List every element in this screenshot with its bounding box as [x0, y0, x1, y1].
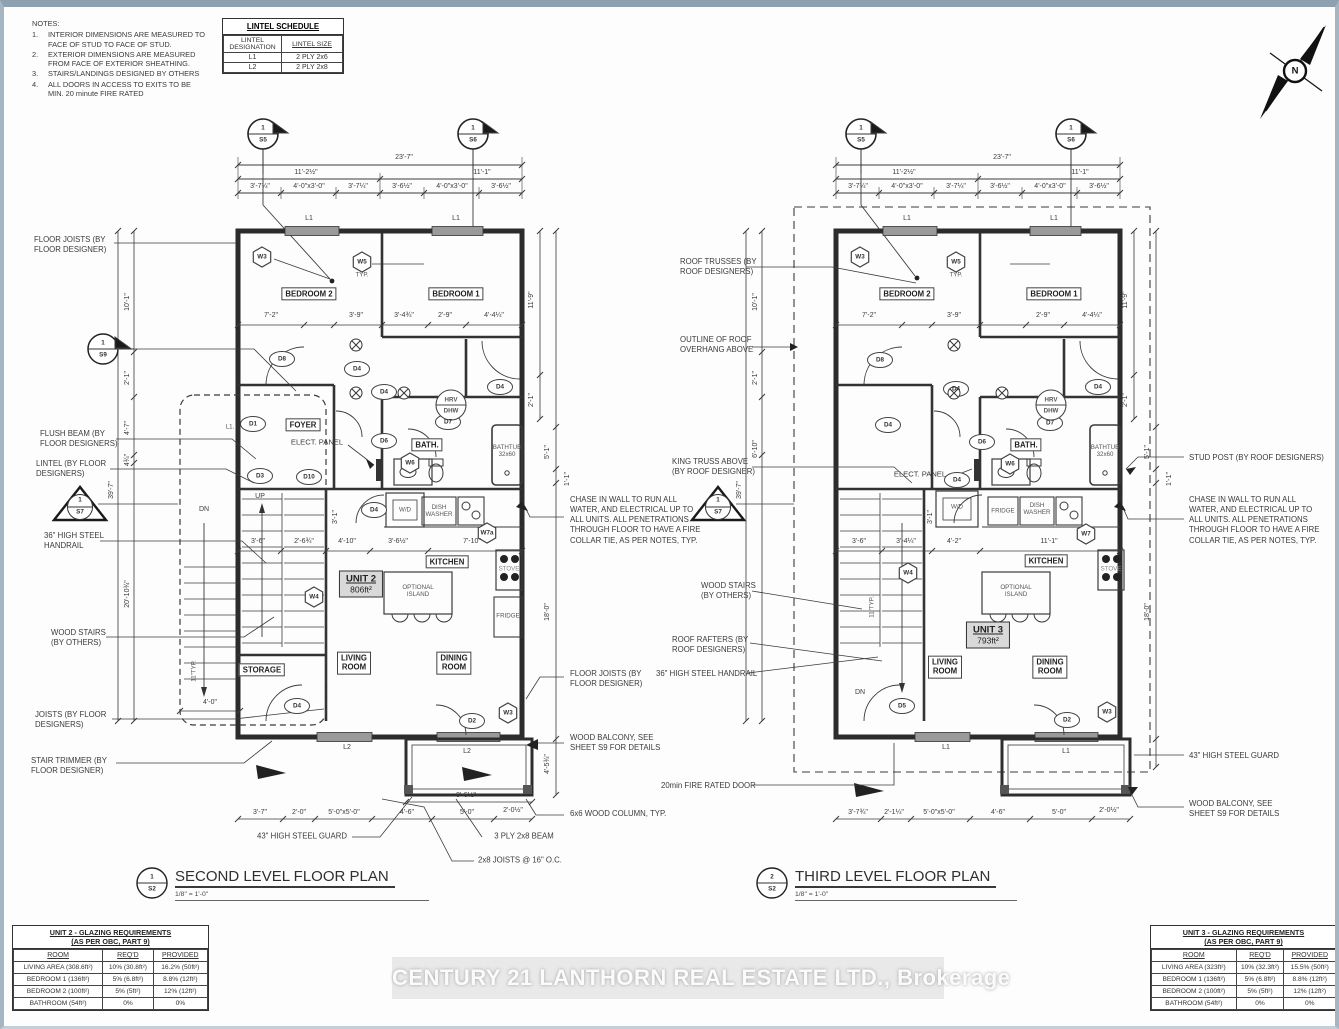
dishwasher-label: DISH WASHER — [426, 504, 453, 518]
washer-dryer-label: W/D — [951, 503, 963, 510]
elect-panel-note: ELECT. PANEL — [894, 471, 946, 480]
dim: 4'-0"x3'-0" — [436, 183, 467, 191]
door-tag: D4 — [952, 386, 960, 393]
col-reqd: REQ'D — [103, 950, 153, 962]
lintel-tag: L1 — [305, 215, 313, 223]
cell: BEDROOM 1 (136ft²) — [1152, 974, 1237, 986]
dim: 4'-0"x3'-0" — [293, 183, 324, 191]
door-tag: D7 — [1046, 420, 1054, 427]
cell: 5% (5ft²) — [1236, 986, 1284, 998]
window-tag: W5 — [951, 259, 960, 266]
col-provided: PROVIDED — [153, 950, 207, 962]
plan-title: THIRD LEVEL FLOOR PLAN — [795, 868, 996, 888]
cell: 5% (6.8ft²) — [1236, 974, 1284, 986]
lintel-tag: L1 — [942, 744, 950, 752]
door-tag: D4 — [380, 389, 388, 396]
dim: 11'-1" — [1071, 169, 1088, 177]
island-label: OPTIONAL ISLAND — [1000, 584, 1031, 598]
dim: 3'-6½" — [491, 183, 511, 191]
callout-wood-stairs: WOOD STAIRS (BY OTHERS) — [51, 628, 106, 648]
dim: 2'-1¼" — [884, 809, 904, 817]
lintel-cell: 2 PLY 2x8 — [282, 63, 343, 73]
dim: 6'-10" — [752, 440, 760, 458]
section-ref: 1 — [261, 125, 265, 132]
dim: 4'-2" — [947, 538, 961, 546]
door-tag: D10 — [303, 474, 315, 481]
dim: 4'-5¾" — [544, 754, 552, 774]
cell: 0% — [153, 998, 207, 1010]
unit3-label: UNIT 3 793ft² — [966, 622, 1010, 649]
dim: 5'-0"x5'-0" — [328, 809, 359, 817]
fridge-label: FRIDGE — [991, 507, 1014, 514]
window-tag: W5 — [357, 259, 366, 266]
room-label-dining: DINING ROOM — [436, 652, 471, 675]
cell: 5% (6.8ft²) — [103, 974, 153, 986]
typ-note: TYP. — [950, 271, 963, 278]
unit-area: 793ft² — [973, 636, 1003, 646]
room-label-living: LIVING ROOM — [928, 656, 962, 679]
dim: 7'-10" — [463, 538, 481, 546]
dim: 11"TYP. — [190, 660, 197, 682]
section-ref: S6 — [1067, 137, 1075, 144]
dim: 2'-0" — [292, 809, 306, 817]
dim: 4'-7" — [124, 421, 132, 435]
room-label-living: LIVING ROOM — [337, 652, 371, 675]
cell: 8.8% (12ft²) — [153, 974, 207, 986]
table-row: BATHROOM (54ft²)0%0% — [1152, 998, 1336, 1010]
window-tag: W6 — [1005, 461, 1014, 468]
door-tag: D2 — [1063, 717, 1071, 724]
section-ref: 1 — [1069, 125, 1073, 132]
dim: 2'-1" — [752, 371, 760, 385]
plan-ref: 2 — [770, 874, 774, 881]
cell: LIVING AREA (323ft²) — [1152, 962, 1237, 974]
north-arrow-icon: N — [1292, 66, 1299, 77]
dim: 3'-7¼" — [348, 183, 368, 191]
dim: 4'-0"x3'-0" — [1034, 183, 1065, 191]
window-tag: W4 — [309, 594, 318, 601]
callout-joists-16oc: 2x8 JOISTS @ 16" O.C. — [478, 857, 562, 866]
cell: LIVING AREA (308.6ft²) — [14, 962, 103, 974]
dim: 39'-7" — [108, 481, 116, 499]
lintel-cell: L2 — [224, 63, 282, 73]
dim: 5'-0"x5'-0" — [923, 809, 954, 817]
section-ref: S6 — [469, 137, 477, 144]
room-label-bedroom1: BEDROOM 1 — [1026, 287, 1081, 300]
table-row: BEDROOM 2 (100ft²)5% (5ft²)12% (12ft²) — [14, 986, 208, 998]
table-row: BEDROOM 2 (100ft²)5% (5ft²)12% (12ft²) — [1152, 986, 1336, 998]
section-ref: 1 — [859, 125, 863, 132]
table-row: LIVING AREA (308.6ft²)10% (30.8ft²)16.2%… — [14, 962, 208, 974]
table-row: LIVING AREA (323ft²)10% (32.3ft²)15.5% (… — [1152, 962, 1336, 974]
typ-note: TYP. — [356, 271, 369, 278]
notes-block: NOTES: 1.INTERIOR DIMENSIONS ARE MEASURE… — [32, 19, 227, 99]
detail-ref: 1 — [101, 340, 105, 347]
table-row: BEDROOM 1 (136ft²)5% (6.8ft²)8.8% (12ft²… — [1152, 974, 1336, 986]
lintel-cell: 2 PLY 2x6 — [282, 53, 343, 63]
stove-label: STOVE — [499, 565, 520, 572]
dim: 2'-1" — [1122, 393, 1130, 407]
dishwasher-label: DISH WASHER — [1024, 502, 1051, 516]
dim: 2'-1" — [124, 371, 132, 385]
door-tag: D4 — [1094, 384, 1102, 391]
cell: 12% (12ft²) — [153, 986, 207, 998]
unit-area: 806ft² — [346, 585, 376, 595]
plan-ref: S2 — [768, 886, 776, 893]
dim: 3'-9" — [947, 312, 961, 320]
col-room: ROOM — [14, 950, 103, 962]
dim: 11'-2½" — [892, 169, 915, 177]
lintel-tag: L2 — [463, 748, 471, 756]
unit-name: UNIT 2 — [346, 574, 376, 585]
dim: 2'-0½" — [1099, 807, 1119, 815]
door-tag: D3 — [256, 473, 264, 480]
callout-floor-joists: FLOOR JOISTS (BY FLOOR DESIGNER) — [34, 235, 106, 255]
window-tag: W3 — [1102, 709, 1111, 716]
dim: 4'-4¼" — [1082, 312, 1102, 320]
section-ref: S7 — [714, 509, 722, 516]
dim: 5'-0" — [1052, 809, 1066, 817]
table-row: BEDROOM 1 (136ft²)5% (6.8ft²)8.8% (12ft²… — [14, 974, 208, 986]
cell: 12% (12ft²) — [1284, 986, 1336, 998]
dim: 2'-1" — [528, 393, 536, 407]
unit-name: UNIT 3 — [973, 625, 1003, 636]
dim: 3'-7¼" — [250, 183, 270, 191]
dim: 3'-6½" — [388, 538, 408, 546]
cell: 10% (30.8ft²) — [103, 962, 153, 974]
note-text: ALL DOORS IN ACCESS TO EXITS TO BE MIN. … — [48, 80, 227, 99]
window-tag: W6 — [405, 460, 414, 467]
callout-fire-door: 20min FIRE RATED DOOR — [661, 781, 756, 791]
dim: 3'-7¼" — [848, 183, 868, 191]
callout-roof-rafters: ROOF RAFTERS (BY ROOF DESIGNERS) — [672, 635, 748, 655]
floor-plan-sheet: NOTES: 1.INTERIOR DIMENSIONS ARE MEASURE… — [0, 0, 1339, 1029]
window-tag: W7 — [1081, 531, 1090, 538]
unit2-glazing-table: UNIT 2 - GLAZING REQUIREMENTS (AS PER OB… — [12, 925, 209, 1011]
door-tag: D8 — [278, 356, 286, 363]
col-room: ROOM — [1152, 950, 1237, 962]
callout-wood-balcony: WOOD BALCONY, SEE SHEET S9 FOR DETAILS — [570, 733, 660, 753]
dim: 4¾" — [124, 454, 132, 466]
dim: 3'-6½" — [392, 183, 412, 191]
callout-ply-beam: 3 PLY 2x8 BEAM — [494, 833, 554, 842]
cell: BEDROOM 2 (100ft²) — [1152, 986, 1237, 998]
dim: 9'-6½" — [456, 792, 476, 800]
callout-steel-guard: 43" HIGH STEEL GUARD — [257, 833, 347, 842]
lintel-tag: L2 — [343, 744, 351, 752]
dim: 10'-1" — [124, 293, 132, 311]
section-ref: S5 — [857, 137, 865, 144]
callout-joists: JOISTS (BY FLOOR DESIGNERS) — [35, 710, 106, 730]
dim: 3'-7¼" — [946, 183, 966, 191]
room-label-kitchen: KITCHEN — [1025, 554, 1068, 567]
window-tag: W7a — [481, 530, 494, 537]
dim: 11'-1" — [473, 169, 490, 177]
dim: 1'-1" — [1166, 472, 1174, 486]
cell: BEDROOM 1 (136ft²) — [14, 974, 103, 986]
dim: 3'-1" — [927, 510, 935, 524]
window-tag: W3 — [503, 710, 512, 717]
dim: 3'-6½" — [1089, 183, 1109, 191]
dim: 4'-10" — [338, 538, 356, 546]
lintel-col-designation: LINTEL DESIGNATION — [224, 36, 282, 53]
washer-dryer-label: W/D — [399, 506, 411, 513]
lintel-cell: L1 — [224, 53, 282, 63]
callout-stair-trimmer: STAIR TRIMMER (BY FLOOR DESIGNER) — [31, 756, 107, 776]
window-tag: W4 — [903, 570, 912, 577]
callout-wood-column: 6x6 WOOD COLUMN, TYP. — [570, 809, 666, 819]
lintel-tag: L1 — [1050, 215, 1058, 223]
door-tag: D1 — [249, 421, 257, 428]
dim: 39'-7" — [736, 481, 744, 499]
dim: 4'-6" — [991, 809, 1005, 817]
callout-wood-balcony: WOOD BALCONY, SEE SHEET S9 FOR DETAILS — [1189, 799, 1279, 819]
callout-roof-overhang: OUTLINE OF ROOF OVERHANG ABOVE — [680, 335, 753, 355]
dim: 18'-0" — [1144, 603, 1152, 621]
col-reqd: REQ'D — [1236, 950, 1284, 962]
dim: 5'-1" — [1144, 445, 1152, 459]
dhw-label: DHW — [1044, 408, 1059, 415]
section-ref: 1 — [471, 125, 475, 132]
dim: 4'-0" — [203, 699, 217, 707]
brokerage-watermark: CENTURY 21 LANTHORN REAL ESTATE LTD., Br… — [392, 957, 944, 999]
lintel-schedule-table: LINTEL SCHEDULE LINTEL DESIGNATIONLINTEL… — [222, 18, 344, 74]
island-label: OPTIONAL ISLAND — [402, 584, 433, 598]
dim: 11'-9" — [528, 291, 536, 308]
lintel-col-size: LINTEL SIZE — [282, 36, 343, 53]
section-ref: S7 — [76, 509, 84, 516]
cell: 8.8% (12ft²) — [1284, 974, 1336, 986]
callout-flush-beam: FLUSH BEAM (BY FLOOR DESIGNERS) — [40, 429, 118, 449]
stair-down-label: DN — [855, 689, 865, 697]
callout-lintel: LINTEL (BY FLOOR DESIGNERS) — [36, 459, 106, 479]
glazing-subtitle: (AS PER OBC, PART 9) — [13, 937, 208, 949]
callout-steel-guard: 43" HIGH STEEL GUARD — [1189, 751, 1279, 761]
room-label-dining: DINING ROOM — [1032, 656, 1067, 679]
dim: 3'-6" — [852, 538, 866, 546]
table-row: BATHROOM (54ft²)0%0% — [14, 998, 208, 1010]
lintel-tag: L1 — [1062, 748, 1070, 756]
cell: 16.2% (50ft²) — [153, 962, 207, 974]
callout-stud-post: STUD POST (BY ROOF DESIGNERS) — [1189, 453, 1324, 463]
dim: 5'-0" — [460, 809, 474, 817]
plan-title: SECOND LEVEL FLOOR PLAN — [175, 868, 395, 888]
dim: 7'-2" — [862, 312, 876, 320]
door-tag: D5 — [898, 703, 906, 710]
glazing-title: UNIT 3 - GLAZING REQUIREMENTS — [1151, 926, 1336, 937]
cell: BATHROOM (54ft²) — [1152, 998, 1237, 1010]
dim: 20'-10¾" — [124, 580, 132, 608]
door-tag: D7 — [444, 419, 452, 426]
dim: 2'-6¾" — [294, 538, 314, 546]
door-tag: D6 — [978, 439, 986, 446]
dim: 3'-1" — [332, 510, 340, 524]
dim: 2'-9" — [438, 312, 452, 320]
dim: 3'-6" — [251, 538, 265, 546]
plan-scale: 1/8" = 1'-0" — [795, 891, 1017, 901]
cell: 0% — [1236, 998, 1284, 1010]
note-text: INTERIOR DIMENSIONS ARE MEASURED TO FACE… — [48, 30, 227, 49]
door-tag: D6 — [380, 438, 388, 445]
stove-label: STOVE — [1101, 565, 1122, 572]
door-tag: D8 — [876, 357, 884, 364]
dim: 3'-9" — [349, 312, 363, 320]
dim: 2'-9" — [1036, 312, 1050, 320]
note-number: 4. — [32, 80, 48, 99]
bathtub-label: BATHTUB 32x60 — [493, 444, 521, 458]
stair-up-label: UP — [255, 493, 265, 501]
cell: 0% — [1284, 998, 1336, 1010]
dim: 10'-1" — [752, 293, 760, 311]
dim: 4'-6" — [400, 809, 414, 817]
glazing-title: UNIT 2 - GLAZING REQUIREMENTS — [13, 926, 208, 937]
callout-chase-wall: CHASE IN WALL TO RUN ALL WATER, AND ELEC… — [1189, 495, 1319, 546]
cell: BATHROOM (54ft²) — [14, 998, 103, 1010]
stair-down-label: DN — [199, 506, 209, 514]
room-label-bath: BATH. — [1010, 438, 1041, 451]
dhw-label: DHW — [444, 408, 459, 415]
callout-handrail: 36" HIGH STEEL HANDRAIL — [44, 531, 104, 551]
door-tag: D4 — [370, 507, 378, 514]
note-text: EXTERIOR DIMENSIONS ARE MEASURED FROM FA… — [48, 50, 227, 69]
callout-floor-joists: FLOOR JOISTS (BY FLOOR DESIGNER) — [570, 669, 642, 689]
note-number: 3. — [32, 69, 48, 78]
glazing-subtitle: (AS PER OBC, PART 9) — [1151, 937, 1336, 949]
lintel-tag: L1. — [226, 423, 235, 430]
dim: 11'-2½" — [294, 169, 317, 177]
detail-ref: S9 — [99, 352, 107, 359]
lintel-tag: L1 — [903, 215, 911, 223]
door-tag: D2 — [468, 718, 476, 725]
callout-roof-trusses: ROOF TRUSSES (BY ROOF DESIGNERS) — [680, 257, 757, 277]
callout-wood-stairs: WOOD STAIRS (BY OTHERS) — [701, 581, 756, 601]
notes-title: NOTES: — [32, 19, 227, 28]
hrv-label: HRV — [1045, 397, 1058, 404]
room-label-bedroom2: BEDROOM 2 — [879, 287, 934, 300]
dim: 11'-1" — [1040, 538, 1057, 546]
note-number: 1. — [32, 30, 48, 49]
callout-chase-wall: CHASE IN WALL TO RUN ALL WATER, AND ELEC… — [570, 495, 700, 546]
callout-king-truss: KING TRUSS ABOVE (BY ROOF DESIGNER) — [672, 457, 755, 477]
dim: 23'-7" — [993, 154, 1011, 162]
door-tag: D4 — [953, 477, 961, 484]
lintel-tag: L1 — [452, 215, 460, 223]
dim: 18'-0" — [544, 603, 552, 621]
dim: 23'-7" — [395, 154, 413, 162]
cell: 5% (5ft²) — [103, 986, 153, 998]
room-label-bedroom2: BEDROOM 2 — [281, 287, 336, 300]
plan-ref: S2 — [148, 886, 156, 893]
dim: 3'-7¾" — [848, 809, 868, 817]
dim: 3'-7" — [253, 809, 267, 817]
plan-scale: 1/8" = 1'-0" — [175, 891, 429, 901]
bathtub-label: BATHTUB 32x60 — [1091, 444, 1119, 458]
door-tag: D4 — [353, 366, 361, 373]
door-tag: D4 — [293, 703, 301, 710]
door-tag: D4 — [884, 422, 892, 429]
dim: 11'-9" — [1122, 291, 1130, 308]
room-label-foyer: FOYER — [286, 418, 321, 431]
note-number: 2. — [32, 50, 48, 69]
dim: 3'-4¼" — [896, 538, 916, 546]
section-ref: 1 — [78, 497, 82, 504]
room-label-bedroom1: BEDROOM 1 — [428, 287, 483, 300]
dim: 7'-2" — [264, 312, 278, 320]
dim: 3'-6½" — [990, 183, 1010, 191]
window-tag: W3 — [257, 254, 266, 261]
cell: 10% (32.3ft²) — [1236, 962, 1284, 974]
cell: BEDROOM 2 (100ft²) — [14, 986, 103, 998]
hrv-label: HRV — [445, 397, 458, 404]
dim: 11"TYP. — [868, 596, 875, 618]
note-text: STAIRS/LANDINGS DESIGNED BY OTHERS — [48, 69, 227, 78]
dim: 4'-4¼" — [484, 312, 504, 320]
cell: 0% — [103, 998, 153, 1010]
dim: 3'-4¾" — [394, 312, 414, 320]
unit3-glazing-table: UNIT 3 - GLAZING REQUIREMENTS (AS PER OB… — [1150, 925, 1337, 1011]
elect-panel-note: ELECT. PANEL — [291, 439, 343, 448]
plan-ref: 1 — [150, 874, 154, 881]
room-label-storage: STORAGE — [239, 663, 285, 676]
dim: 1'-1" — [564, 472, 572, 486]
section-ref: S5 — [259, 137, 267, 144]
lintel-schedule-title: LINTEL SCHEDULE — [223, 19, 343, 35]
room-label-bath: BATH. — [411, 438, 442, 451]
col-provided: PROVIDED — [1284, 950, 1336, 962]
dim: 2'-0½" — [503, 807, 523, 815]
cell: 15.5% (50ft²) — [1284, 962, 1336, 974]
dim: 4'-0"x3'-0" — [891, 183, 922, 191]
section-ref: 1 — [716, 497, 720, 504]
dim: 5'-1" — [544, 445, 552, 459]
door-tag: D4 — [496, 384, 504, 391]
fridge-label: FRIDGE — [496, 612, 519, 619]
room-label-kitchen: KITCHEN — [426, 555, 469, 568]
unit2-label: UNIT 2 806ft² — [339, 571, 383, 598]
window-tag: W3 — [855, 254, 864, 261]
callout-handrail: 36" HIGH STEEL HANDRAIL — [656, 669, 757, 679]
